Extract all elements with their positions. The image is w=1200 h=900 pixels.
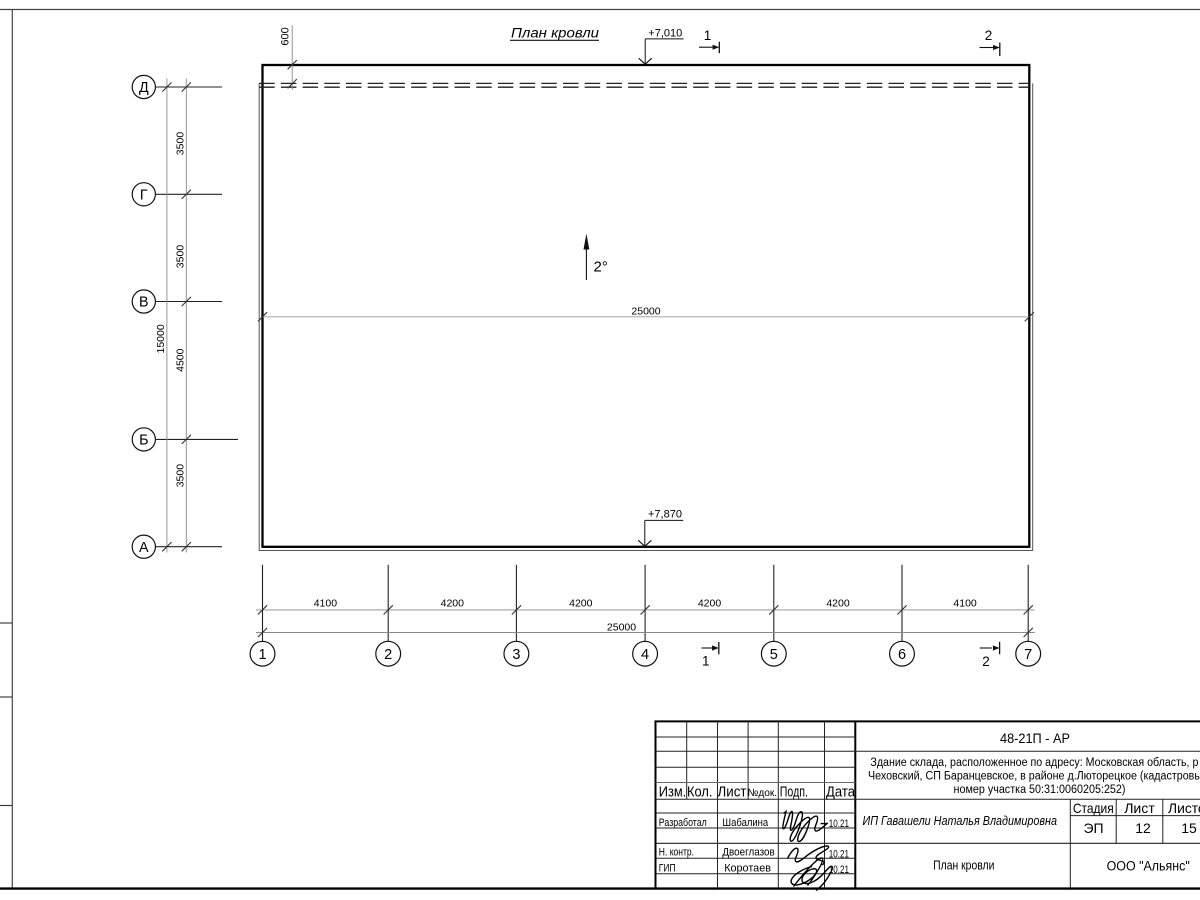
svg-text:6: 6	[898, 647, 906, 663]
svg-text:25000: 25000	[631, 305, 660, 317]
svg-text:№док.: №док.	[747, 787, 777, 799]
svg-text:Шабалина: Шабалина	[722, 817, 769, 829]
svg-text:10.21: 10.21	[829, 848, 849, 860]
svg-text:3500: 3500	[174, 132, 186, 156]
svg-text:ИП Гавашели Наталья Владимиров: ИП Гавашели Наталья Владимировна	[863, 813, 1058, 828]
svg-text:7: 7	[1024, 647, 1032, 663]
svg-text:Дата: Дата	[826, 784, 856, 800]
svg-text:ГИП: ГИП	[659, 863, 676, 875]
svg-text:+7,010: +7,010	[648, 27, 682, 39]
svg-text:ООО "Альянс": ООО "Альянс"	[1107, 858, 1190, 873]
svg-text:Здание склада, расположенное п: Здание склада, расположенное по адресу: …	[870, 757, 1198, 769]
svg-text:Лист: Лист	[1124, 800, 1155, 816]
svg-text:Стадия: Стадия	[1073, 800, 1114, 816]
svg-text:4200: 4200	[698, 598, 722, 610]
svg-text:4500: 4500	[174, 348, 186, 372]
svg-text:Разработал: Разработал	[659, 817, 707, 829]
svg-text:4100: 4100	[314, 598, 338, 610]
svg-text:25000: 25000	[607, 622, 636, 634]
svg-text:600: 600	[280, 27, 292, 45]
svg-text:Листов: Листов	[1168, 800, 1200, 816]
svg-text:Б: Б	[139, 433, 148, 449]
svg-text:Изм.: Изм.	[659, 784, 687, 800]
svg-text:План кровли: План кровли	[933, 858, 994, 872]
svg-text:2: 2	[982, 654, 990, 669]
svg-text:3500: 3500	[174, 245, 186, 269]
svg-text:3500: 3500	[174, 464, 186, 488]
svg-text:2: 2	[384, 647, 392, 663]
svg-text:4: 4	[641, 647, 649, 663]
svg-text:Коротаев: Коротаев	[724, 863, 771, 875]
svg-text:Подп.: Подп.	[780, 784, 808, 800]
svg-text:2°: 2°	[594, 259, 608, 276]
svg-text:1: 1	[704, 28, 712, 43]
svg-text:Д: Д	[139, 80, 149, 96]
svg-text:номер участка 50:31:0060205:25: номер участка 50:31:0060205:252)	[954, 784, 1126, 796]
svg-text:1: 1	[702, 653, 710, 668]
svg-text:15: 15	[1181, 820, 1197, 836]
svg-text:2: 2	[985, 28, 993, 43]
svg-text:4200: 4200	[826, 598, 850, 610]
svg-text:4200: 4200	[569, 598, 593, 610]
svg-text:48-21П - АР: 48-21П - АР	[1000, 730, 1070, 746]
svg-text:Н. контр.: Н. контр.	[659, 847, 694, 859]
svg-text:В: В	[139, 295, 149, 311]
svg-text:+7,870: +7,870	[648, 509, 682, 521]
svg-text:А: А	[139, 540, 149, 556]
svg-text:Лист: Лист	[718, 784, 747, 800]
svg-text:12: 12	[1135, 820, 1151, 836]
svg-text:Чеховский, СП Баранцевское, в: Чеховский, СП Баранцевское, в районе д.Л…	[868, 770, 1200, 782]
svg-text:4100: 4100	[953, 598, 977, 610]
svg-text:3: 3	[512, 647, 520, 663]
svg-text:ЭП: ЭП	[1083, 820, 1103, 836]
svg-text:15000: 15000	[155, 324, 167, 353]
svg-text:Г: Г	[140, 188, 148, 204]
svg-text:Кол.: Кол.	[687, 784, 712, 800]
svg-text:План кровли: План кровли	[511, 26, 600, 41]
svg-text:Двоеглазов: Двоеглазов	[722, 847, 774, 859]
svg-text:10.21: 10.21	[829, 818, 849, 830]
svg-text:5: 5	[770, 647, 778, 663]
svg-text:1: 1	[258, 647, 266, 663]
svg-text:4200: 4200	[441, 598, 465, 610]
